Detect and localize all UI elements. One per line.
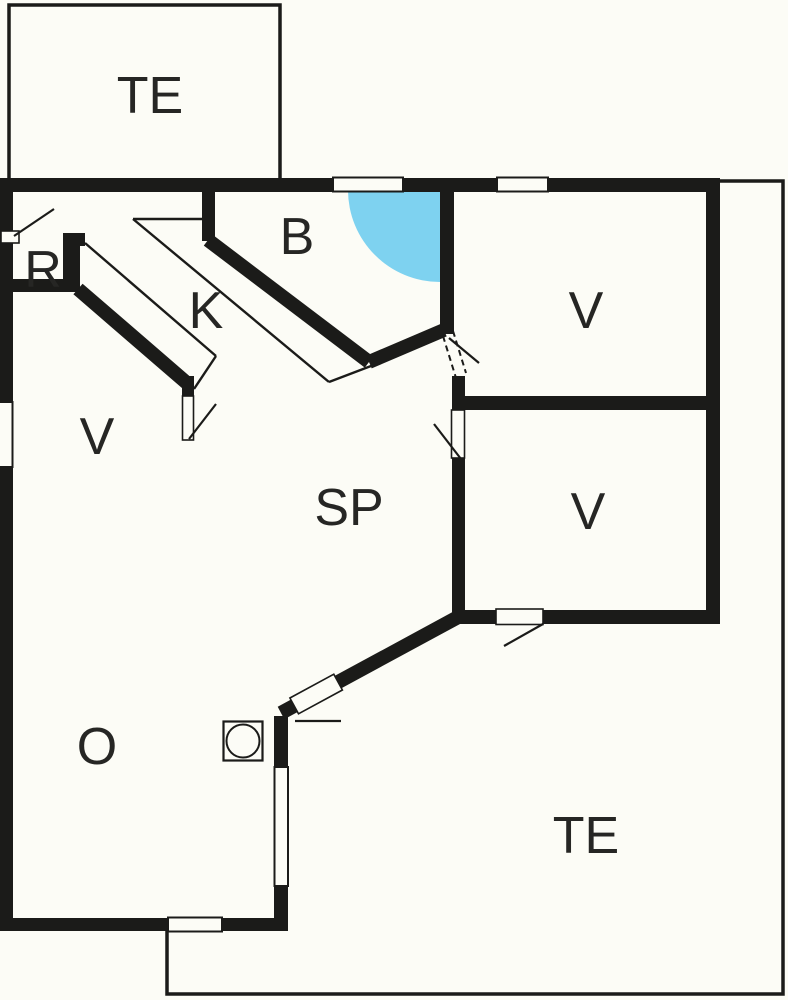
wall-bottom bbox=[0, 918, 288, 931]
room-label-bedroom-left: V bbox=[80, 408, 115, 466]
door-opening bbox=[496, 609, 543, 625]
washer-body bbox=[224, 722, 263, 761]
wall-kitchen-cap bbox=[182, 376, 194, 397]
window bbox=[168, 918, 222, 932]
room-label-living-room: SP bbox=[314, 479, 383, 537]
room-label-utility: O bbox=[77, 718, 117, 776]
wall-bath-bedroom-divider bbox=[440, 188, 454, 334]
wall-right bbox=[706, 178, 720, 624]
wall-bedroom-divider bbox=[452, 396, 707, 410]
room-label-bathroom: B bbox=[280, 208, 315, 266]
washing-machine-icon bbox=[224, 722, 263, 761]
wall-bath-left bbox=[202, 192, 215, 241]
floor-plan: TE R B K V V V SP O TE bbox=[0, 0, 788, 1000]
window bbox=[497, 178, 548, 192]
wall-midbedroom-left bbox=[452, 458, 465, 614]
wall-v-bottom bbox=[453, 610, 720, 624]
door-jamb-notch bbox=[1, 231, 19, 243]
window bbox=[0, 402, 13, 467]
window bbox=[275, 767, 289, 886]
room-label-kitchen: K bbox=[189, 282, 224, 340]
room-label-terrace-top: TE bbox=[117, 67, 183, 125]
wall-left bbox=[0, 178, 13, 931]
room-label-bedroom-top: V bbox=[569, 282, 604, 340]
door-opening bbox=[183, 396, 194, 440]
room-label-bedroom-mid: V bbox=[571, 483, 606, 541]
window bbox=[333, 178, 403, 192]
room-label-storage: R bbox=[24, 241, 62, 299]
floor-plan-svg: TE R B K V V V SP O TE bbox=[0, 0, 788, 1000]
room-label-terrace-bottom: TE bbox=[553, 807, 619, 865]
